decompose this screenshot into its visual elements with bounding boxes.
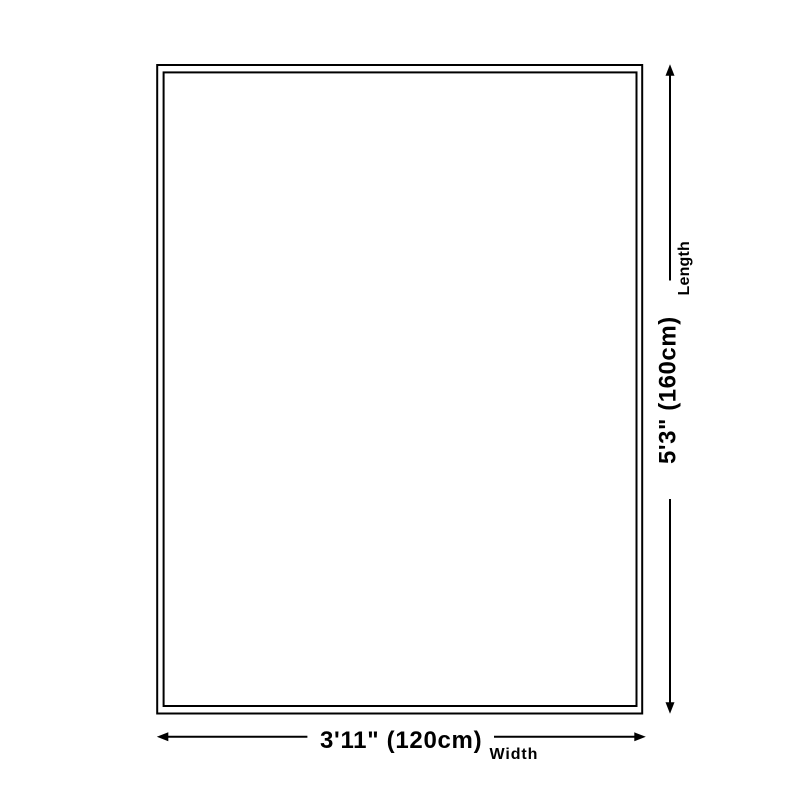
svg-text:Length: Length: [676, 241, 693, 296]
svg-text:5'3" (160cm): 5'3" (160cm): [655, 316, 682, 464]
svg-text:3'11" (120cm): 3'11" (120cm): [320, 727, 482, 754]
svg-text:Width: Width: [490, 746, 539, 763]
